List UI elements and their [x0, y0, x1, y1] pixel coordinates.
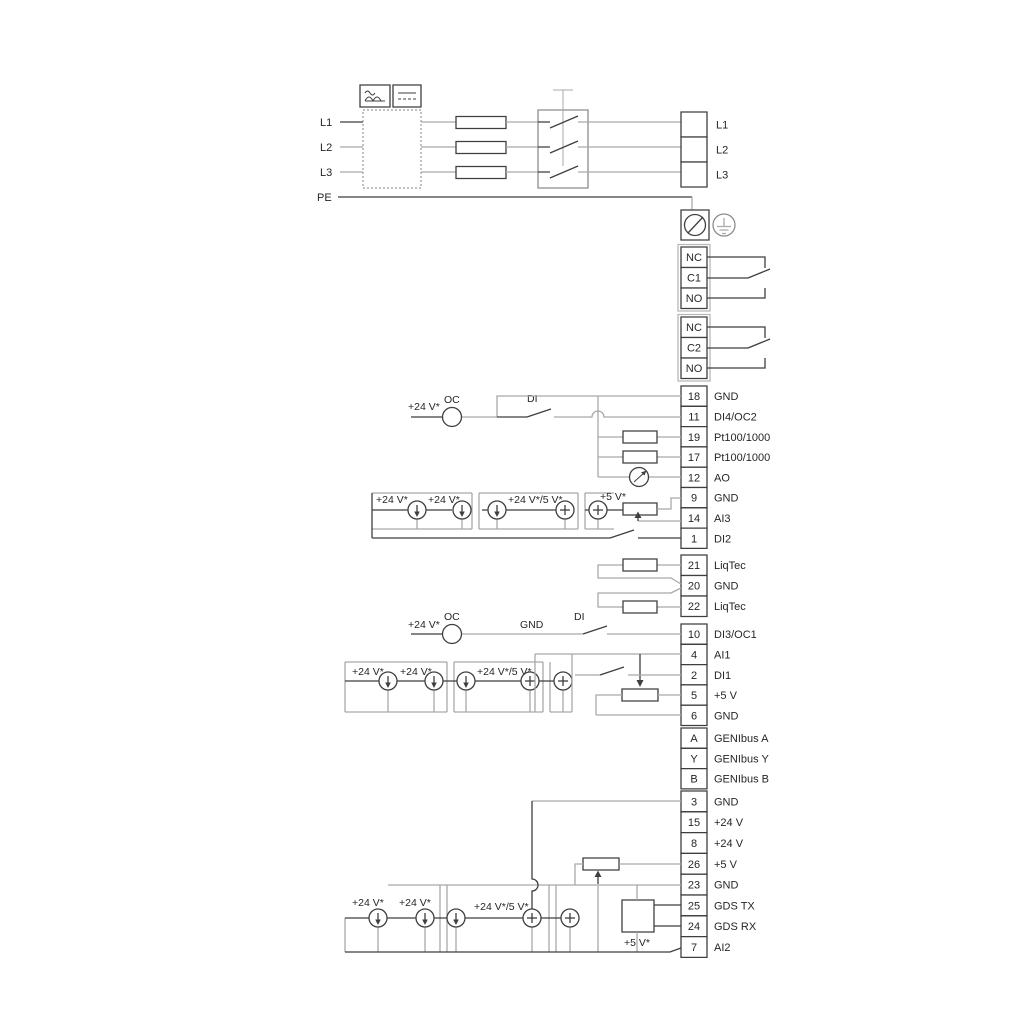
terminal-label: +24 V	[714, 838, 744, 850]
terminal-number: 17	[688, 452, 700, 464]
terminal-label: L2	[716, 145, 728, 157]
terminal-number: 3	[691, 796, 697, 808]
wiring-diagram: L1 L2 L3 PE L1 L2 L3	[0, 0, 1024, 1024]
mains-pe-label: PE	[317, 192, 332, 204]
terminal-label: Pt100/1000	[714, 432, 770, 444]
pt100-sensor-2	[623, 451, 657, 463]
terminal-label: LiqTec	[714, 601, 746, 613]
terminal-label: AI3	[714, 513, 731, 525]
terminal-number: 12	[688, 472, 700, 484]
current-source-icon	[453, 501, 471, 519]
terminal-number: Y	[690, 753, 698, 765]
voltage-source-icon	[521, 672, 539, 690]
terminal-number: A	[690, 733, 698, 745]
terminal-number: 14	[688, 513, 700, 525]
open-collector-circle	[443, 625, 462, 644]
open-collector-circle	[443, 408, 462, 427]
terminal-label: +24 V	[714, 817, 744, 829]
voltage-source-icon	[523, 909, 541, 927]
terminal-box-l2	[681, 137, 707, 162]
terminal-number: 15	[688, 817, 700, 829]
potentiometer	[622, 689, 658, 701]
terminal-label: AI2	[714, 942, 731, 954]
liqtec-sensor-2	[623, 601, 657, 613]
terminal-number: 4	[691, 650, 697, 662]
oc-label: OC	[444, 394, 460, 406]
terminal-number: 2	[691, 670, 697, 682]
terminal-label: DI1	[714, 670, 731, 682]
gnd-label: GND	[520, 619, 544, 631]
terminal-label: L1	[716, 120, 728, 132]
terminal-label: GND	[714, 796, 739, 808]
plus5v-label: +5 V*	[600, 491, 626, 503]
terminal-label: C2	[687, 343, 701, 355]
plus24v-5v-label: +24 V*/5 V*	[474, 901, 529, 913]
terminal-label: GND	[714, 391, 739, 403]
voltage-source-icon	[554, 672, 572, 690]
terminal-number: 20	[688, 581, 700, 593]
plus24v-5v-label: +24 V*/5 V*	[508, 494, 563, 506]
terminal-number: 11	[688, 412, 699, 424]
terminal-number: 23	[688, 880, 700, 892]
pt100-sensor-1	[623, 431, 657, 443]
terminal-number: 26	[688, 859, 700, 871]
gds-sensor-box	[622, 900, 654, 932]
terminal-number: 9	[691, 493, 697, 505]
terminal-label: NO	[686, 363, 703, 375]
terminal-label: GENIbus Y	[714, 753, 769, 765]
current-source-icon	[379, 672, 397, 690]
ac-symbol-box	[360, 85, 390, 107]
power-output-terminals: L1 L2 L3	[681, 112, 728, 187]
terminal-label: +5 V	[714, 859, 738, 871]
fuse-l2	[456, 142, 506, 154]
terminal-label: NO	[686, 293, 703, 305]
background	[0, 0, 1024, 1024]
terminal-label: NC	[686, 252, 702, 264]
protective-earth-icon	[713, 214, 735, 236]
current-source-icon	[457, 672, 475, 690]
fuse-l3	[456, 167, 506, 179]
wiring-diagram-page: L1 L2 L3 PE L1 L2 L3	[0, 0, 1024, 1024]
terminal-label: GND	[714, 710, 739, 722]
plus5v-label: +5 V*	[624, 937, 650, 949]
terminal-label: Pt100/1000	[714, 452, 770, 464]
mains-l3-label: L3	[320, 167, 332, 179]
oc-label: OC	[444, 611, 460, 623]
current-source-icon	[447, 909, 465, 927]
terminal-label: LiqTec	[714, 560, 746, 572]
voltage-source-icon	[589, 501, 607, 519]
terminal-label: GND	[714, 880, 739, 892]
current-source-icon	[425, 672, 443, 690]
terminal-label: GDS RX	[714, 921, 757, 933]
mains-l2-label: L2	[320, 142, 332, 154]
plus24v-label: +24 V*	[408, 401, 440, 413]
voltage-source-icon	[556, 501, 574, 519]
terminal-label: GENIbus B	[714, 774, 769, 786]
terminal-number: 18	[688, 391, 700, 403]
plus24v-label: +24 V*	[352, 897, 384, 909]
terminal-label: DI2	[714, 533, 731, 545]
fuse-l1	[456, 117, 506, 129]
plus24v-label: +24 V*	[376, 494, 408, 506]
terminal-label: GND	[714, 493, 739, 505]
terminal-number: 22	[688, 601, 700, 613]
terminal-number: B	[690, 774, 697, 786]
dc-symbol-box	[393, 85, 421, 107]
plus24v-label: +24 V*	[408, 619, 440, 631]
terminal-label: DI3/OC1	[714, 629, 757, 641]
terminal-label: GDS TX	[714, 900, 755, 912]
plus24v-label: +24 V*	[399, 897, 431, 909]
terminal-label: +5 V	[714, 690, 738, 702]
terminal-number: 10	[688, 629, 700, 641]
plus24v-label: +24 V*	[352, 666, 384, 678]
terminal-label: C1	[687, 273, 701, 285]
current-source-icon	[408, 501, 426, 519]
terminal-number: 8	[691, 838, 697, 850]
current-source-icon	[488, 501, 506, 519]
terminal-number: 19	[688, 432, 700, 444]
current-source-icon	[416, 909, 434, 927]
potentiometer	[583, 858, 619, 870]
di-label: DI	[574, 611, 585, 623]
liqtec-sensor-1	[623, 559, 657, 571]
terminal-label: L3	[716, 170, 728, 182]
terminal-number: 1	[691, 533, 697, 545]
terminal-box-l1	[681, 112, 707, 137]
terminal-label: NC	[686, 322, 702, 334]
current-source-icon	[369, 909, 387, 927]
terminal-label: AO	[714, 472, 730, 484]
terminal-number: 25	[688, 900, 700, 912]
earth-connection	[681, 210, 735, 240]
terminal-box-l3	[681, 162, 707, 187]
mains-l1-label: L1	[320, 117, 332, 129]
terminal-label: DI4/OC2	[714, 412, 757, 424]
terminal-number: 24	[688, 921, 700, 933]
terminal-label: AI1	[714, 650, 731, 662]
terminal-number: 5	[691, 690, 697, 702]
di-label: DI	[527, 393, 538, 405]
terminal-label: GND	[714, 581, 739, 593]
terminal-number: 7	[691, 942, 697, 954]
terminal-number: 21	[688, 560, 700, 572]
voltage-source-icon	[561, 909, 579, 927]
potentiometer	[623, 503, 657, 515]
terminal-number: 6	[691, 710, 697, 722]
terminal-label: GENIbus A	[714, 733, 769, 745]
